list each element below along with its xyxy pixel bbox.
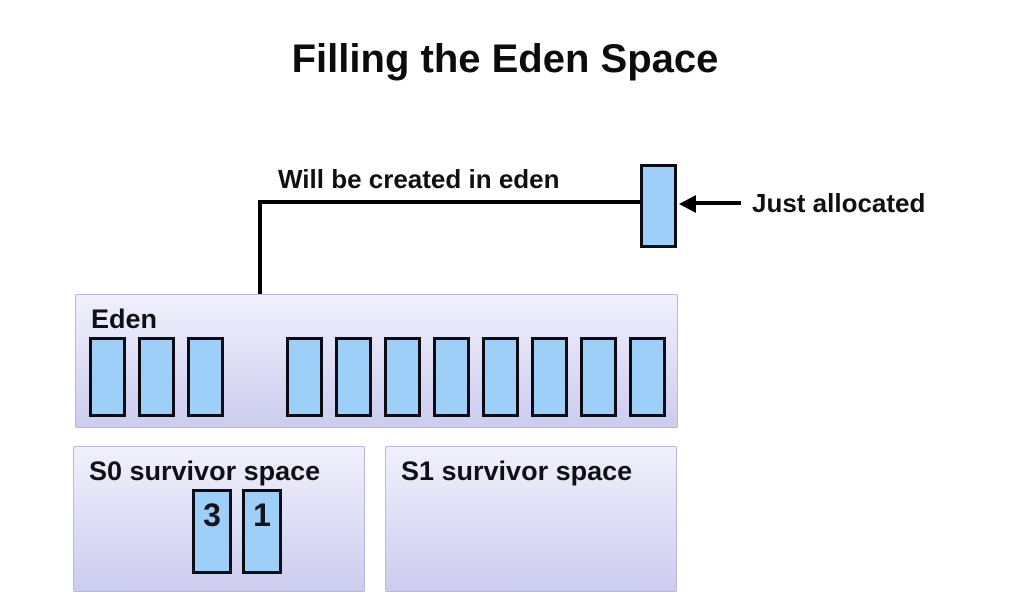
s0-objects-group: 31 <box>192 489 282 574</box>
s0-survivor-panel: S0 survivor space 31 <box>73 446 365 592</box>
s1-survivor-panel: S1 survivor space <box>385 446 677 592</box>
eden-object <box>531 337 568 417</box>
survivor-object: 3 <box>192 489 232 574</box>
eden-object <box>629 337 666 417</box>
eden-object <box>89 337 126 417</box>
eden-object <box>384 337 421 417</box>
s0-survivor-label: S0 survivor space <box>89 456 320 487</box>
just-allocated-label: Just allocated <box>752 188 925 219</box>
connector-horizontal-line <box>258 200 641 204</box>
eden-object <box>138 337 175 417</box>
eden-object <box>580 337 617 417</box>
eden-space-panel: Eden <box>75 294 678 428</box>
survivor-object: 1 <box>242 489 282 574</box>
just-allocated-arrow-line <box>694 201 741 205</box>
s1-survivor-label: S1 survivor space <box>401 456 632 487</box>
eden-objects-left-group <box>89 337 224 417</box>
eden-object <box>286 337 323 417</box>
eden-objects-right-group <box>286 337 666 417</box>
slide: Filling the Eden Space Will be created i… <box>0 0 1023 612</box>
created-in-eden-label: Will be created in eden <box>278 164 560 195</box>
eden-label: Eden <box>91 304 157 335</box>
slide-title: Filling the Eden Space <box>0 37 1010 82</box>
eden-object <box>335 337 372 417</box>
eden-object <box>482 337 519 417</box>
eden-object <box>433 337 470 417</box>
eden-object <box>187 337 224 417</box>
just-allocated-object <box>640 164 677 248</box>
